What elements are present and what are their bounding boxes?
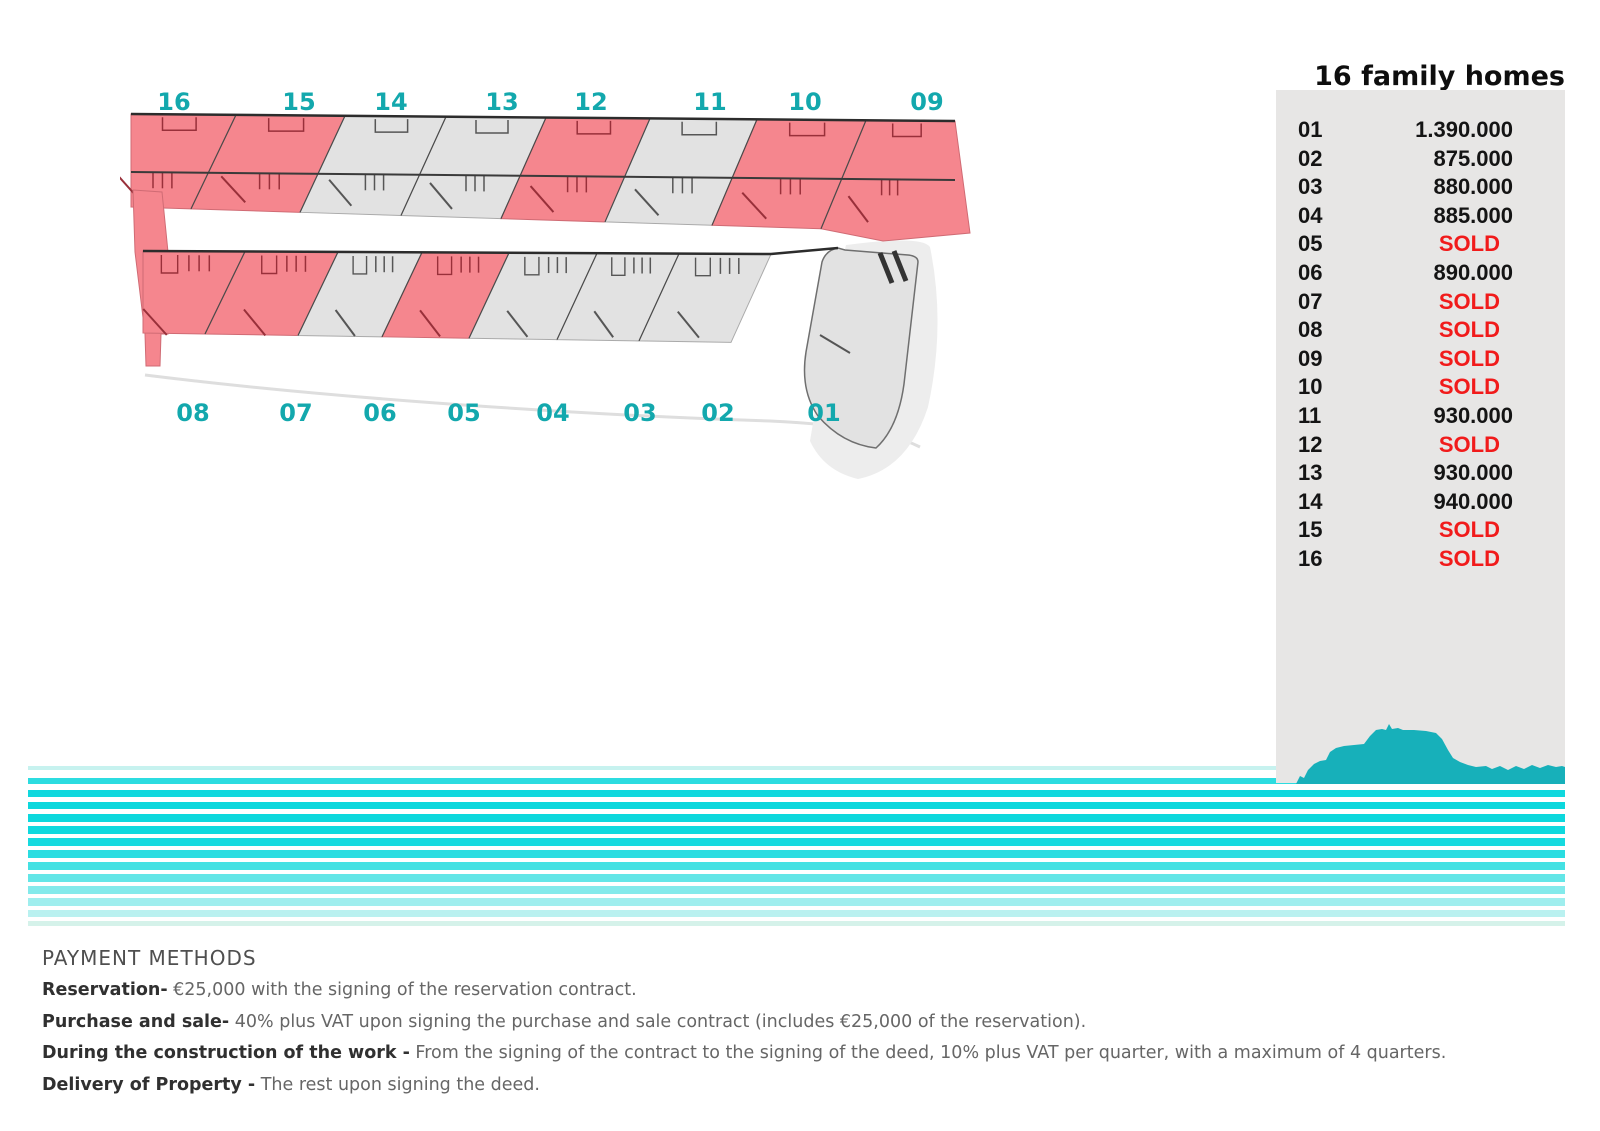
mountain-silhouette	[1290, 714, 1565, 784]
payment-term: Delivery of Property -	[42, 1075, 255, 1095]
site-boundary-line	[145, 375, 920, 447]
sold-badge: SOLD	[1439, 230, 1500, 259]
unit-label-07: 07	[279, 399, 312, 427]
price-row-15: 15SOLD	[1276, 516, 1565, 545]
mountain-path	[1296, 724, 1565, 784]
sold-badge: SOLD	[1439, 288, 1500, 317]
sold-badge: SOLD	[1439, 316, 1500, 345]
unit-label-09: 09	[910, 88, 943, 116]
unit-number: 04	[1298, 202, 1322, 231]
price-row-07: 07SOLD	[1276, 288, 1565, 317]
price-row-08: 08SOLD	[1276, 316, 1565, 345]
price-row-16: 16SOLD	[1276, 545, 1565, 574]
cyan-stripe	[28, 874, 1565, 882]
cyan-stripe	[28, 814, 1565, 822]
cyan-stripe	[28, 826, 1565, 834]
price-value: 885.000	[1433, 202, 1513, 231]
price-value: 930.000	[1433, 459, 1513, 488]
price-row-01: 011.390.000	[1276, 116, 1565, 145]
sold-badge: SOLD	[1439, 373, 1500, 402]
unit-label-16: 16	[157, 88, 190, 116]
price-row-02: 02875.000	[1276, 145, 1565, 174]
unit-number: 05	[1298, 230, 1322, 259]
price-row-12: 12SOLD	[1276, 431, 1565, 460]
unit-number: 06	[1298, 259, 1322, 288]
cyan-stripe	[28, 850, 1565, 858]
price-value: 1.390.000	[1415, 116, 1513, 145]
price-row-06: 06890.000	[1276, 259, 1565, 288]
unit-label-08: 08	[176, 399, 209, 427]
unit-number: 11	[1298, 402, 1321, 431]
price-row-10: 10SOLD	[1276, 373, 1565, 402]
sold-badge: SOLD	[1439, 516, 1500, 545]
cyan-stripe	[28, 898, 1565, 906]
unit-label-13: 13	[485, 88, 518, 116]
unit-number: 14	[1298, 488, 1322, 517]
payment-methods-heading: PAYMENT METHODS	[42, 946, 257, 970]
sold-badge: SOLD	[1439, 345, 1500, 374]
unit-number: 03	[1298, 173, 1322, 202]
price-row-05: 05SOLD	[1276, 230, 1565, 259]
cyan-stripe	[28, 862, 1565, 870]
cyan-stripe	[28, 886, 1565, 894]
price-list: 011.390.00002875.00003880.00004885.00005…	[1276, 116, 1565, 574]
unit-number: 01	[1298, 116, 1322, 145]
unit-number: 10	[1298, 373, 1322, 402]
unit-label-10: 10	[788, 88, 821, 116]
price-row-11: 11930.000	[1276, 402, 1565, 431]
site-plan: 16151413121110090807060504030201	[120, 85, 1000, 505]
payment-desc: 40% plus VAT upon signing the purchase a…	[229, 1012, 1086, 1032]
cyan-stripe	[28, 910, 1565, 917]
unit-label-05: 05	[447, 399, 480, 427]
unit-number: 09	[1298, 345, 1322, 374]
price-row-13: 13930.000	[1276, 459, 1565, 488]
price-row-14: 14940.000	[1276, 488, 1565, 517]
price-row-03: 03880.000	[1276, 173, 1565, 202]
unit-number: 16	[1298, 545, 1322, 574]
payment-line: Delivery of Property - The rest upon sig…	[42, 1075, 540, 1095]
cyan-stripe	[28, 921, 1565, 926]
price-row-09: 09SOLD	[1276, 345, 1565, 374]
price-row-04: 04885.000	[1276, 202, 1565, 231]
payment-line: Purchase and sale- 40% plus VAT upon sig…	[42, 1012, 1086, 1032]
payment-desc: From the signing of the contract to the …	[410, 1043, 1446, 1063]
payment-term: Purchase and sale-	[42, 1012, 229, 1032]
unit-label-04: 04	[536, 399, 569, 427]
unit-label-14: 14	[374, 88, 407, 116]
unit-label-02: 02	[701, 399, 734, 427]
price-value: 875.000	[1433, 145, 1513, 174]
page-title: 16 family homes	[1314, 61, 1565, 92]
unit-label-15: 15	[282, 88, 315, 116]
sold-badge: SOLD	[1439, 545, 1500, 574]
cyan-stripe-band	[28, 766, 1565, 926]
sold-badge: SOLD	[1439, 431, 1500, 460]
unit-number: 13	[1298, 459, 1322, 488]
payment-desc: €25,000 with the signing of the reservat…	[168, 980, 637, 1000]
unit-label-06: 06	[363, 399, 396, 427]
unit-label-03: 03	[623, 399, 656, 427]
price-value: 940.000	[1433, 488, 1513, 517]
cyan-stripe	[28, 790, 1565, 797]
payment-term: Reservation-	[42, 980, 168, 1000]
price-panel: 011.390.00002875.00003880.00004885.00005…	[1276, 90, 1565, 783]
unit-label-12: 12	[574, 88, 607, 116]
flyer-page: 16151413121110090807060504030201 16 fami…	[0, 0, 1600, 1131]
unit-number: 02	[1298, 145, 1322, 174]
unit-number: 07	[1298, 288, 1322, 317]
unit-label-11: 11	[693, 88, 726, 116]
cyan-stripe	[28, 838, 1565, 846]
payment-line: During the construction of the work - Fr…	[42, 1043, 1446, 1063]
cyan-stripe	[28, 802, 1565, 809]
payment-line: Reservation- €25,000 with the signing of…	[42, 980, 637, 1000]
price-value: 880.000	[1433, 173, 1513, 202]
payment-desc: The rest upon signing the deed.	[255, 1075, 540, 1095]
price-value: 930.000	[1433, 402, 1513, 431]
unit-label-01: 01	[807, 399, 840, 427]
unit-number: 12	[1298, 431, 1322, 460]
unit-number: 15	[1298, 516, 1322, 545]
unit-number: 08	[1298, 316, 1322, 345]
payment-term: During the construction of the work -	[42, 1043, 410, 1063]
price-value: 890.000	[1433, 259, 1513, 288]
